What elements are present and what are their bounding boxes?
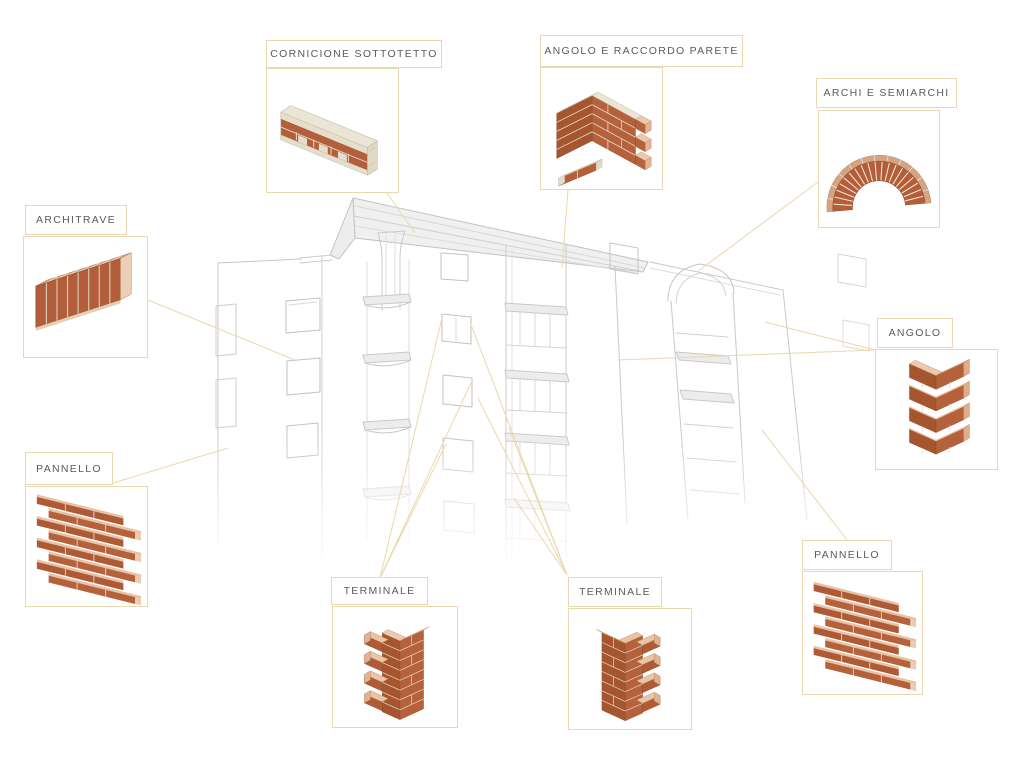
callout-line-angolo	[618, 322, 875, 360]
pannello-destra-icon	[803, 572, 922, 694]
callout-line-architrave	[148, 300, 295, 360]
label-archi-e-semiarchi[interactable]: ARCHI E SEMIARCHI	[816, 78, 957, 108]
illustration-box-terminale-destra	[568, 608, 692, 730]
illustration-box-terminale-sinistra	[332, 606, 458, 728]
label-pannello-sinistra[interactable]: PANNELLO	[25, 452, 113, 485]
cornicione-sottotetto-icon	[267, 69, 398, 192]
terminale-sinistra-icon	[333, 607, 457, 727]
label-terminale-sinistra[interactable]: TERMINALE	[331, 577, 428, 605]
illustration-box-angolo	[875, 349, 998, 470]
angolo-icon	[876, 350, 997, 469]
illustration-box-pannello-destra	[802, 571, 923, 695]
angolo-e-raccordo-parete-icon	[541, 68, 662, 189]
label-architrave[interactable]: ARCHITRAVE	[25, 205, 127, 235]
illustration-box-architrave	[23, 236, 148, 358]
sketch-fade	[200, 430, 900, 600]
callout-line-archi	[697, 182, 818, 272]
label-terminale-destra[interactable]: TERMINALE	[568, 577, 662, 607]
label-pannello-destra[interactable]: PANNELLO	[802, 540, 892, 570]
architrave-icon	[24, 237, 147, 357]
label-angolo-e-raccordo-parete[interactable]: ANGOLO E RACCORDO PARETE	[540, 35, 743, 67]
illustration-box-archi-e-semiarchi	[818, 110, 940, 228]
label-cornicione-sottotetto[interactable]: CORNICIONE SOTTOTETTO	[266, 40, 442, 68]
illustration-box-cornicione-sottotetto	[266, 68, 399, 193]
pannello-sinistra-icon	[26, 487, 147, 606]
label-angolo[interactable]: ANGOLO	[877, 318, 953, 348]
illustration-box-pannello-sinistra	[25, 486, 148, 607]
archi-e-semiarchi-icon	[819, 111, 939, 227]
illustration-box-angolo-e-raccordo-parete	[540, 67, 663, 190]
terminale-destra-icon	[569, 609, 691, 729]
diagram-stage: CORNICIONE SOTTOTETTO ANGOLO E RACCORDO …	[0, 0, 1024, 768]
